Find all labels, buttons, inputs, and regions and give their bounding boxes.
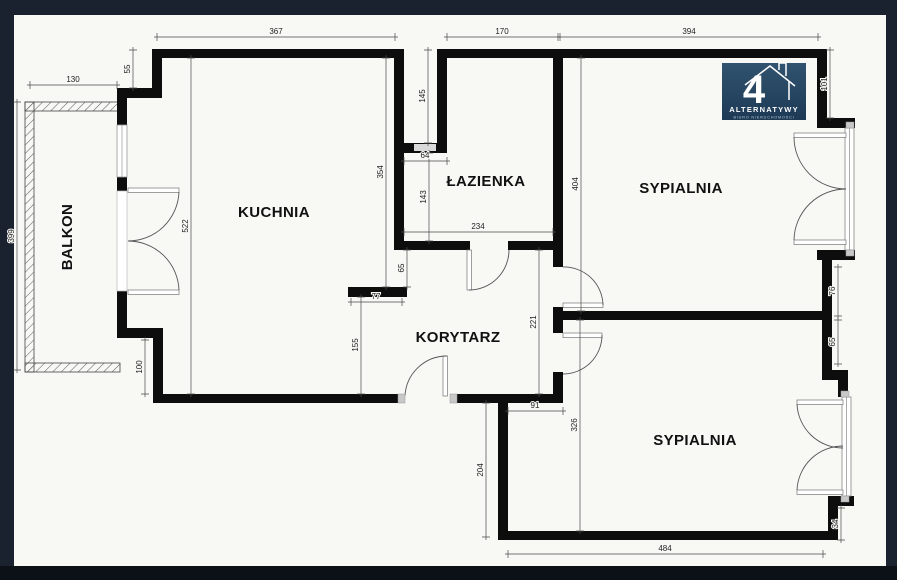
- wall: [152, 49, 162, 94]
- dimension-label: 34: [831, 519, 840, 528]
- dimension-label: 65: [397, 263, 406, 272]
- dark-frame-bottom: [0, 566, 897, 580]
- room-label-sypialnia-top: SYPIALNIA: [639, 180, 723, 197]
- wall: [498, 394, 508, 534]
- room-label-balkon: BALKON: [59, 204, 76, 271]
- logo-title: ALTERNATYWY: [729, 105, 799, 114]
- dimension-label: 170: [495, 27, 509, 36]
- balcony-door-leaf: [128, 188, 179, 193]
- dimension-label: 354: [376, 165, 385, 179]
- wall: [437, 49, 827, 58]
- dimension-label: 65: [828, 337, 837, 346]
- dimension-label: 522: [181, 219, 190, 233]
- casement-leaf: [797, 400, 843, 405]
- wall: [553, 372, 563, 403]
- dimension-label: 91: [531, 401, 540, 410]
- wall: [498, 531, 838, 540]
- dimension-label: 404: [571, 177, 580, 191]
- bedroom-top-door-leaf: [563, 303, 603, 308]
- floor-plan-screenshot: 367 170 394 130 55 399 522 354 145 64 14…: [0, 0, 897, 580]
- dimension-label: 101: [820, 77, 829, 91]
- dimension-label: 326: [570, 418, 579, 432]
- balcony-wall-top: [25, 102, 120, 111]
- dimension-label: 221: [529, 315, 538, 329]
- wall: [553, 49, 563, 267]
- dimension-label: 77: [372, 292, 381, 301]
- casement-leaf: [797, 490, 843, 495]
- wall: [553, 311, 832, 320]
- dimension-label: 155: [351, 338, 360, 352]
- logo-subtitle: BIURO NIERUCHOMOŚCI: [734, 115, 795, 120]
- balcony-door-threshold: [117, 191, 127, 291]
- dimension-label: 64: [421, 151, 430, 160]
- wall: [437, 49, 447, 153]
- wall: [152, 49, 404, 58]
- dimension-label: 204: [476, 463, 485, 477]
- agency-logo: 4 ALTERNATYWY BIURO NIERUCHOMOŚCI: [722, 63, 806, 120]
- door-jamb: [398, 394, 405, 403]
- room-label-lazienka: ŁAZIENKA: [446, 173, 525, 190]
- wall: [394, 241, 470, 250]
- dimension-label: 100: [135, 360, 144, 374]
- dimension-label: 76: [828, 286, 837, 295]
- wall: [117, 177, 127, 191]
- dimension-label: 55: [123, 64, 132, 73]
- casement-leaf: [794, 240, 846, 245]
- wall: [508, 241, 563, 250]
- window-jamb: [841, 391, 849, 397]
- balcony-wall-bottom: [25, 363, 120, 372]
- balcony-wall-left: [25, 102, 34, 372]
- dimension-label: 234: [471, 222, 485, 231]
- wall: [153, 328, 163, 403]
- casement-leaf: [794, 133, 846, 138]
- dimension-label: 399: [7, 229, 16, 243]
- shaft-slab: [414, 144, 436, 151]
- door-jamb: [450, 394, 457, 403]
- dimension-label: 394: [682, 27, 696, 36]
- room-label-korytarz: KORYTARZ: [416, 329, 501, 346]
- room-label-sypialnia-bottom: SYPIALNIA: [653, 432, 737, 449]
- entrance-door-leaf: [443, 356, 448, 396]
- wall: [117, 96, 127, 125]
- window-jamb: [841, 496, 849, 502]
- room-label-kuchnia: KUCHNIA: [238, 204, 310, 221]
- bathroom-door-leaf: [467, 250, 472, 290]
- window-jamb: [846, 250, 854, 256]
- bedroom-bottom-door-leaf: [563, 333, 602, 338]
- dimension-label: 145: [418, 89, 427, 103]
- floor-plan: 367 170 394 130 55 399 522 354 145 64 14…: [0, 0, 897, 580]
- dimension-label: 367: [269, 27, 283, 36]
- wall: [822, 258, 832, 375]
- dimension-label: 130: [66, 75, 80, 84]
- dimension-label: 484: [658, 544, 672, 553]
- balcony-door-leaf: [128, 290, 179, 295]
- dimension-label: 143: [419, 190, 428, 204]
- window-jamb: [846, 122, 854, 128]
